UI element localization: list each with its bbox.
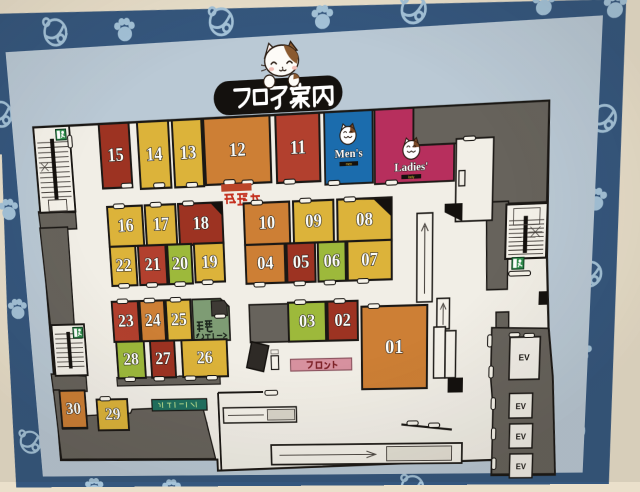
svg-text:19: 19 (201, 252, 218, 272)
svg-text:09: 09 (305, 210, 322, 231)
svg-text:02: 02 (334, 310, 351, 330)
svg-text:24: 24 (144, 310, 161, 329)
svg-text:25: 25 (170, 310, 187, 330)
svg-text:14: 14 (145, 143, 163, 164)
svg-text:10: 10 (258, 212, 275, 233)
svg-text:28: 28 (123, 350, 140, 369)
svg-text:16: 16 (117, 215, 134, 236)
svg-text:15: 15 (107, 144, 125, 165)
svg-text:12: 12 (229, 139, 246, 161)
svg-text:EV: EV (516, 463, 527, 471)
svg-text:29: 29 (105, 405, 121, 423)
svg-text:20: 20 (172, 253, 189, 273)
svg-text:23: 23 (117, 311, 134, 330)
svg-text:EV: EV (516, 433, 527, 442)
svg-text:26: 26 (196, 348, 213, 367)
svg-text:05: 05 (293, 252, 310, 273)
svg-text:men: men (346, 162, 353, 166)
svg-text:06: 06 (323, 250, 340, 271)
svg-text:lady: lady (408, 175, 414, 179)
svg-text:13: 13 (179, 142, 196, 164)
svg-text:01: 01 (385, 336, 403, 358)
svg-text:11: 11 (290, 136, 307, 158)
svg-text:EV: EV (515, 402, 526, 411)
svg-text:30: 30 (65, 399, 81, 417)
svg-text:EV: EV (518, 352, 529, 362)
svg-text:07: 07 (361, 249, 378, 270)
svg-text:17: 17 (152, 214, 169, 235)
svg-text:04: 04 (257, 253, 274, 273)
svg-text:Men's: Men's (335, 147, 364, 161)
svg-text:03: 03 (299, 311, 316, 331)
svg-text:Ladies': Ladies' (394, 160, 428, 174)
svg-text:18: 18 (192, 213, 209, 234)
svg-text:08: 08 (356, 209, 373, 230)
svg-text:22: 22 (115, 255, 132, 275)
svg-text:27: 27 (155, 349, 172, 368)
svg-text:21: 21 (144, 254, 161, 274)
